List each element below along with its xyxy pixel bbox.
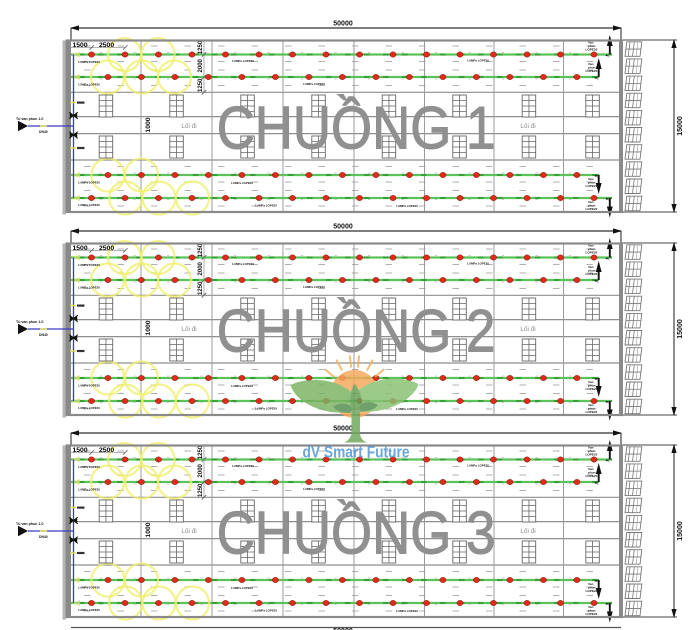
svg-text:dV Smart Future: dV Smart Future bbox=[303, 444, 410, 462]
svg-text:CHUỒNG 1: CHUỒNG 1 bbox=[217, 93, 496, 161]
svg-text:CHUỒNG 2: CHUỒNG 2 bbox=[217, 296, 496, 364]
svg-text:CHUỒNG 3: CHUỒNG 3 bbox=[217, 498, 496, 566]
